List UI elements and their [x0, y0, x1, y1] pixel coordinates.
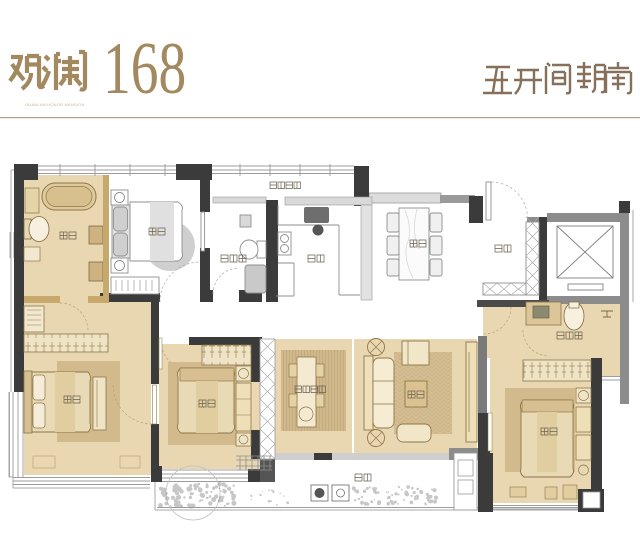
svg-text:168: 168: [103, 29, 186, 110]
svg-text:GUANLAN·HONOR MANSION: GUANLAN·HONOR MANSION: [25, 102, 85, 107]
